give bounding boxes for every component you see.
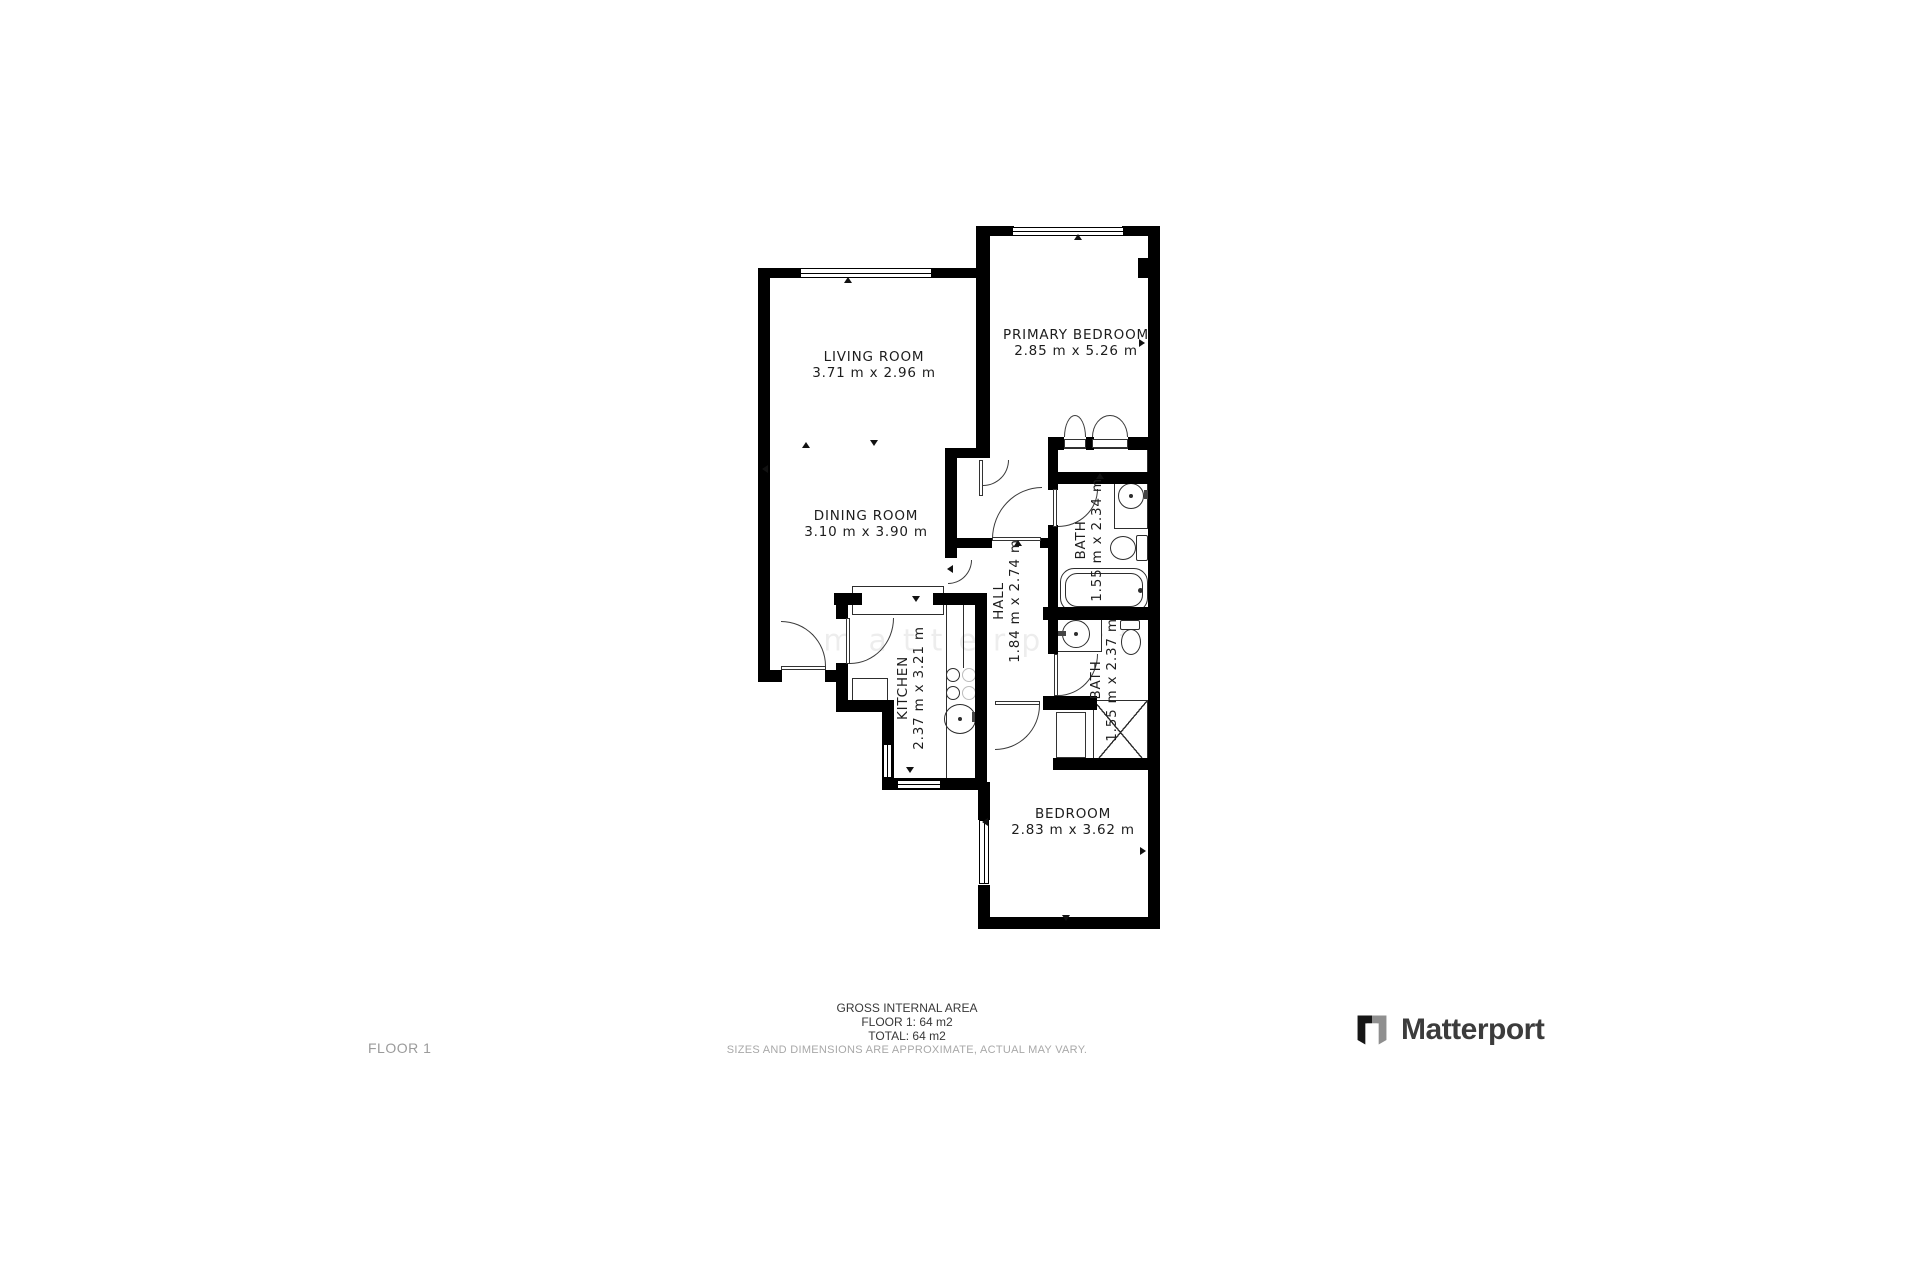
- toilet-tank: [1136, 535, 1148, 561]
- floorplan-page: matterport LIVING ROOM 3.71 m x 2.96 m D…: [0, 0, 1920, 1280]
- room-dims: 2.83 m x 3.62 m: [1011, 823, 1135, 839]
- window-symbol: [883, 744, 892, 778]
- kitchen-counter: [852, 586, 944, 615]
- measure-arrow: [844, 277, 852, 283]
- floor-label: FLOOR 1: [368, 1040, 431, 1056]
- measure-arrow: [906, 767, 914, 773]
- window-symbol: [897, 780, 941, 789]
- room-label-bath-1: BATH 1.55 m x 2.34 m: [1074, 478, 1106, 602]
- wall: [1048, 620, 1058, 654]
- room-dims: 1.55 m x 2.34 m: [1090, 478, 1106, 602]
- measure-arrow: [1140, 847, 1146, 855]
- door-leaf: [995, 701, 1040, 705]
- room-label-primary-bedroom: PRIMARY BEDROOM 2.85 m x 5.26 m: [1003, 328, 1149, 360]
- room-label-bedroom: BEDROOM 2.83 m x 3.62 m: [1011, 807, 1135, 839]
- door-leaf: [1092, 439, 1128, 448]
- room-name: DINING ROOM: [804, 509, 928, 525]
- window-symbol: [1012, 227, 1124, 236]
- room-name: LIVING ROOM: [812, 350, 936, 366]
- door-leaf: [979, 460, 983, 496]
- wall: [976, 226, 990, 452]
- room-name: BEDROOM: [1011, 807, 1135, 823]
- wall: [976, 226, 1014, 236]
- window-symbol: [800, 268, 932, 278]
- counter-edge: [946, 605, 947, 778]
- room-name: PRIMARY BEDROOM: [1003, 328, 1149, 344]
- wall: [836, 700, 894, 712]
- wall: [1048, 525, 1058, 619]
- area-title: GROSS INTERNAL AREA: [727, 1002, 1088, 1016]
- door-leaf: [1056, 712, 1086, 758]
- wall: [978, 782, 990, 820]
- area-total: TOTAL: 64 m2: [727, 1030, 1088, 1044]
- door-leaf: [1053, 489, 1057, 527]
- measure-arrow: [947, 565, 953, 573]
- door-leaf: [1054, 654, 1058, 696]
- measure-arrow: [1062, 915, 1070, 921]
- door-swing-arc: [1064, 415, 1075, 437]
- door-swing-arc: [1075, 415, 1086, 437]
- room-name: HALL: [992, 539, 1008, 663]
- door-swing-arc: [1110, 415, 1128, 437]
- toilet-bowl: [1110, 536, 1136, 560]
- matterport-logo-icon: [1352, 1010, 1392, 1050]
- room-name: BATH: [1074, 478, 1090, 602]
- wall: [1048, 437, 1064, 450]
- stove-burner: [962, 686, 976, 700]
- wall: [758, 670, 782, 682]
- counter-edge: [963, 605, 964, 668]
- door-swing-arc: [995, 705, 1040, 750]
- wall: [1048, 472, 1058, 490]
- wall: [1138, 258, 1148, 278]
- wall: [1148, 226, 1160, 927]
- room-label-hall: HALL 1.84 m x 2.74 m: [992, 539, 1024, 663]
- wall: [834, 593, 862, 605]
- fixture-detail: [1138, 588, 1143, 593]
- room-dims: 1.55 m x 2.37 m: [1105, 618, 1121, 742]
- wall: [975, 598, 987, 790]
- wall: [945, 538, 992, 548]
- door-leaf: [781, 666, 826, 670]
- door-swing-arc: [1092, 415, 1110, 437]
- room-dims: 1.84 m x 2.74 m: [1008, 539, 1024, 663]
- area-summary: GROSS INTERNAL AREA FLOOR 1: 64 m2 TOTAL…: [727, 1002, 1088, 1058]
- measure-arrow: [1074, 234, 1082, 240]
- room-label-dining-room: DINING ROOM 3.10 m x 3.90 m: [804, 509, 928, 541]
- room-dims: 3.71 m x 2.96 m: [812, 366, 936, 382]
- room-label-kitchen: KITCHEN 2.37 m x 3.21 m: [896, 626, 928, 750]
- stove-burner: [946, 668, 960, 682]
- room-dims: 3.10 m x 3.90 m: [804, 525, 928, 541]
- wardrobe-interior: [1056, 448, 1148, 474]
- fixture-detail: [958, 717, 962, 721]
- room-dims: 2.37 m x 3.21 m: [912, 626, 928, 750]
- wall: [1053, 758, 1160, 770]
- measure-arrow: [912, 596, 920, 602]
- room-name: KITCHEN: [896, 626, 912, 750]
- stove-burner: [946, 686, 960, 700]
- measure-arrow: [870, 440, 878, 446]
- measure-arrow: [762, 465, 768, 473]
- measure-arrow: [802, 442, 810, 448]
- stove-burner: [962, 668, 976, 682]
- wall: [945, 448, 990, 458]
- door-swing-arc: [983, 460, 1009, 486]
- fixture-detail: [1129, 494, 1133, 498]
- fixture-detail: [1074, 632, 1078, 636]
- area-floor: FLOOR 1: 64 m2: [727, 1016, 1088, 1030]
- area-disclaimer: SIZES AND DIMENSIONS ARE APPROXIMATE, AC…: [727, 1044, 1088, 1058]
- room-label-living-room: LIVING ROOM 3.71 m x 2.96 m: [812, 350, 936, 382]
- matterport-logo: Matterport: [1352, 1010, 1544, 1050]
- wall: [758, 268, 770, 682]
- door-leaf: [846, 618, 850, 664]
- door-swing-arc: [781, 621, 826, 666]
- room-dims: 2.85 m x 5.26 m: [1003, 344, 1149, 360]
- wall: [933, 593, 987, 605]
- matterport-logo-text: Matterport: [1401, 1013, 1544, 1047]
- toilet-bowl: [1121, 629, 1141, 655]
- wall: [1128, 437, 1160, 450]
- measure-arrow: [982, 818, 988, 826]
- door-swing-arc: [992, 487, 1042, 539]
- door-leaf: [1064, 439, 1086, 448]
- window-symbol: [979, 820, 989, 884]
- sink-tap: [1058, 631, 1066, 636]
- room-name: BATH: [1089, 618, 1105, 742]
- room-label-bath-2: BATH 1.55 m x 2.37 m: [1089, 618, 1121, 742]
